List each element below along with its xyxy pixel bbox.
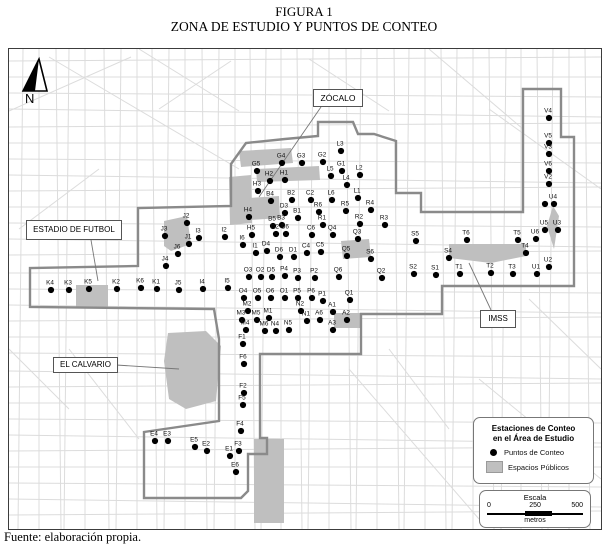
- point-label-L6: L6: [327, 190, 335, 197]
- point-L6: [329, 197, 335, 203]
- point-label-R6: R6: [314, 202, 323, 209]
- map-canvas: K4K3K5K2K6K1J2J3J1J6J4J5I2I3I6I1I4I5G5G4…: [8, 48, 602, 530]
- point-R2: [357, 221, 363, 227]
- point-label-I2: I2: [221, 227, 227, 234]
- point-I3: [196, 235, 202, 241]
- source-note: Fuente: elaboración propia.: [4, 530, 141, 545]
- legend-item-public-spaces: Espacios Públicos: [490, 461, 593, 473]
- legend-title-line1: Estaciones de Conteo: [474, 424, 593, 434]
- point-label-E3: E3: [163, 431, 171, 438]
- point-label-O2: O2: [256, 267, 265, 274]
- scale-title: Escala: [480, 493, 590, 502]
- point-M6: [262, 328, 268, 334]
- point-I1: [253, 250, 259, 256]
- point-J3: [162, 233, 168, 239]
- point-label-E2: E2: [202, 441, 210, 448]
- point-label-C2: C2: [306, 190, 315, 197]
- point-label-E4: E4: [150, 431, 158, 438]
- point-J2: [184, 220, 190, 226]
- point-label-T3: T3: [508, 264, 516, 271]
- point-A1: [330, 309, 336, 315]
- point-U6: [533, 236, 539, 242]
- point-L3: [338, 148, 344, 154]
- point-Q5: [344, 253, 350, 259]
- point-O6: [268, 295, 274, 301]
- point-label-F5: F5: [238, 395, 246, 402]
- point-label-D4: D4: [262, 241, 271, 248]
- point-E6: [233, 469, 239, 475]
- point-label-N5: N5: [284, 320, 293, 327]
- point-label-F3: F3: [234, 441, 242, 448]
- scale-bar: Escala 0 250 500 metros: [479, 490, 591, 528]
- point-label-G4: G4: [277, 153, 286, 160]
- legend-item-spaces-label: Espacios Públicos: [508, 463, 569, 472]
- point-label-R4: R4: [366, 200, 375, 207]
- point-label-F1: F1: [238, 334, 246, 341]
- point-L4: [344, 182, 350, 188]
- public-space-el-calvario: [164, 331, 221, 409]
- point-F1: [240, 341, 246, 347]
- point-label-E6: E6: [231, 462, 239, 469]
- zocalo-label: ZÓCALO: [313, 89, 363, 107]
- point-I6: [240, 242, 246, 248]
- point-A3: [330, 327, 336, 333]
- point-D1: [291, 254, 297, 260]
- point-label-E1: E1: [225, 446, 233, 453]
- point-G1: [339, 168, 345, 174]
- point-B1: [295, 215, 301, 221]
- point-O1: [282, 295, 288, 301]
- estadio-leader-line: [91, 240, 98, 281]
- point-label-A3: A3: [328, 320, 336, 327]
- point-E4: [152, 438, 158, 444]
- point-label-P3: P3: [293, 268, 301, 275]
- point-label-N4: N4: [271, 321, 280, 328]
- point-L1: [355, 195, 361, 201]
- point-label-N2: N2: [296, 301, 305, 308]
- point-B4: [268, 198, 274, 204]
- point-label-L5: L5: [326, 166, 334, 173]
- point-label-G3: G3: [297, 153, 306, 160]
- scale-ticks: 0 250 500: [487, 502, 583, 510]
- point-label-Q6: Q6: [334, 267, 343, 274]
- point-label-O3: O3: [244, 267, 253, 274]
- point-E1: [227, 453, 233, 459]
- point-S1: [433, 272, 439, 278]
- point-label-B4: B4: [266, 191, 274, 198]
- point-M4: [243, 327, 249, 333]
- point-label-H1: H1: [280, 170, 289, 177]
- point-label-K2: K2: [112, 279, 120, 286]
- point-label-D1: D1: [289, 247, 298, 254]
- point-label-I5: I5: [224, 278, 230, 285]
- point-label-R3: R3: [380, 215, 389, 222]
- point-label-T4: T4: [521, 243, 529, 250]
- point-S4: [446, 255, 452, 261]
- el-calvario-label: EL CALVARIO: [53, 357, 118, 373]
- point-label-Q3: Q3: [353, 229, 362, 236]
- point-R4: [368, 207, 374, 213]
- point-label-K6: K6: [136, 278, 144, 285]
- point-F4: [238, 428, 244, 434]
- point-label-V4: V4: [544, 108, 552, 115]
- point-label-A6: A6: [315, 310, 323, 317]
- point-K3: [66, 287, 72, 293]
- point-P3: [295, 275, 301, 281]
- point-label-M6: M6: [260, 321, 269, 328]
- point-T3: [510, 271, 516, 277]
- point-label-R2: R2: [355, 214, 364, 221]
- point-label-C6: C6: [307, 225, 316, 232]
- point-L5: [328, 173, 334, 179]
- point-Q3: [355, 236, 361, 242]
- public-space-icon: [486, 461, 503, 473]
- point-A2: [344, 317, 350, 323]
- point-N4: [273, 328, 279, 334]
- point-Q2: [379, 275, 385, 281]
- point-label-B5: B5: [268, 216, 276, 223]
- point-label-Q5: Q5: [342, 246, 351, 253]
- point-V2: [546, 181, 552, 187]
- point-label-K4: K4: [46, 280, 54, 287]
- north-label: N: [25, 91, 34, 106]
- point-label-J4: J4: [162, 256, 169, 263]
- point-label-K5: K5: [84, 279, 92, 286]
- point-M2: [245, 308, 251, 314]
- point-label-T6: T6: [462, 230, 470, 237]
- point-label-I3: I3: [195, 228, 201, 235]
- point-P1: [320, 298, 326, 304]
- point-G3: [299, 160, 305, 166]
- point-label-S2: S2: [409, 264, 417, 271]
- point-F5: [240, 402, 246, 408]
- point-label-C5: C5: [316, 242, 325, 249]
- point-G2: [320, 159, 326, 165]
- point-label-L4: L4: [342, 175, 350, 182]
- point-label-V5: V5: [544, 133, 552, 140]
- figure-title: FIGURA 1 ZONA DE ESTUDIO Y PUNTOS DE CON…: [0, 4, 608, 35]
- public-space-imss-block: [449, 244, 526, 263]
- point-T6: [464, 237, 470, 243]
- imss-label: IMSS: [480, 310, 516, 328]
- point-label-A1: A1: [328, 302, 336, 309]
- point-label-C4: C4: [302, 243, 311, 250]
- point-label-S5: S5: [411, 231, 419, 238]
- point-V3: [546, 151, 552, 157]
- point-E2: [204, 448, 210, 454]
- point-label-G2: G2: [318, 152, 327, 159]
- point-label-F6: F6: [239, 354, 247, 361]
- point-label-H5: H5: [247, 225, 256, 232]
- point-label-Q4: Q4: [328, 225, 337, 232]
- point-S5: [413, 238, 419, 244]
- legend-title-line2: en el Área de Estudio: [474, 434, 593, 444]
- point-label-K3: K3: [64, 280, 72, 287]
- point-Q4: [330, 232, 336, 238]
- point-label-P6: P6: [307, 288, 315, 295]
- point-label-M2: M2: [243, 301, 252, 308]
- point-J1: [186, 241, 192, 247]
- point-E3: [165, 438, 171, 444]
- point-K4: [48, 287, 54, 293]
- point-B2: [289, 197, 295, 203]
- point-label-K1: K1: [152, 279, 160, 286]
- scale-tick-250: 250: [529, 502, 541, 509]
- point-label-O6: O6: [266, 288, 275, 295]
- point-label-P4: P4: [280, 266, 288, 273]
- point-K6: [138, 285, 144, 291]
- point-R5: [343, 208, 349, 214]
- point-label-N1: N1: [302, 311, 311, 318]
- point-label-I4: I4: [199, 279, 205, 286]
- point-H5: [249, 232, 255, 238]
- point-label-M1: M1: [264, 308, 273, 315]
- point-label-P1: P1: [318, 291, 326, 298]
- point-label-L1: L1: [353, 188, 361, 195]
- point-C5: [318, 249, 324, 255]
- point-label-T5: T5: [513, 230, 521, 237]
- point-label-F2: F2: [239, 383, 247, 390]
- point-label-G1: G1: [337, 161, 346, 168]
- point-E5: [192, 444, 198, 450]
- point-H1: [282, 177, 288, 183]
- point-label-S4: S4: [444, 248, 452, 255]
- point-label-U6: U6: [531, 229, 540, 236]
- scale-tick-0: 0: [487, 502, 491, 509]
- point-U4: [551, 201, 557, 207]
- point-label-H3: H3: [253, 181, 262, 188]
- point-label-I1: I1: [252, 243, 258, 250]
- point-N1: [304, 318, 310, 324]
- point-label-D6: D6: [275, 247, 284, 254]
- legend-item-points-label: Puntos de Conteo: [504, 448, 564, 457]
- point-L2: [357, 172, 363, 178]
- point-D6: [277, 254, 283, 260]
- point-K5: [86, 286, 92, 292]
- figure-caption: ZONA DE ESTUDIO Y PUNTOS DE CONTEO: [0, 19, 608, 35]
- point-label-V2: V2: [544, 174, 552, 181]
- point-P2: [312, 275, 318, 281]
- point-D4: [264, 248, 270, 254]
- point-H3: [255, 188, 261, 194]
- point-label-R1: R1: [318, 215, 327, 222]
- point-D3: [282, 210, 288, 216]
- point-Q1: [347, 297, 353, 303]
- point-K2: [114, 286, 120, 292]
- figure-page: FIGURA 1 ZONA DE ESTUDIO Y PUNTOS DE CON…: [0, 0, 608, 550]
- scale-tick-500: 500: [571, 502, 583, 509]
- point-label-U3: U3: [553, 220, 562, 227]
- point-F3: [236, 448, 242, 454]
- point-label-Q1: Q1: [345, 290, 354, 297]
- point-label-L3: L3: [336, 141, 344, 148]
- point-K1: [154, 286, 160, 292]
- point-I2: [222, 234, 228, 240]
- point-P6: [309, 295, 315, 301]
- point-label-B1: B1: [293, 208, 301, 215]
- point-N5: [286, 327, 292, 333]
- point-label-L2: L2: [355, 165, 363, 172]
- point-label-I6: I6: [239, 235, 245, 242]
- point-C6: [309, 232, 315, 238]
- point-label-D3: D3: [280, 203, 289, 210]
- scale-unit: metros: [480, 517, 590, 525]
- point-J6: [175, 251, 181, 257]
- point-U2: [546, 264, 552, 270]
- scale-bar-graphic: [487, 510, 583, 516]
- point-G5: [254, 168, 260, 174]
- point-label-U5: U5: [540, 220, 549, 227]
- point-O5: [255, 295, 261, 301]
- north-arrow: [23, 59, 47, 91]
- point-label-T2: T2: [486, 263, 494, 270]
- point-T1: [457, 271, 463, 277]
- point-T2: [488, 270, 494, 276]
- point-P4: [282, 273, 288, 279]
- point-Q6: [336, 274, 342, 280]
- point-label-H2: H2: [265, 171, 274, 178]
- point-F6: [241, 361, 247, 367]
- point-unlabeled: [542, 201, 548, 207]
- point-A6: [317, 317, 323, 323]
- point-label-H4: H4: [244, 207, 253, 214]
- point-label-U4: U4: [549, 194, 558, 201]
- point-label-O5: O5: [253, 288, 262, 295]
- point-label-R5: R5: [341, 201, 350, 208]
- point-label-B2: B2: [287, 190, 295, 197]
- point-H4: [246, 214, 252, 220]
- legend: Estaciones de Conteo en el Área de Estud…: [473, 417, 594, 484]
- legend-item-points: Puntos de Conteo: [490, 448, 593, 457]
- point-J5: [176, 287, 182, 293]
- point-label-D5: D5: [267, 267, 276, 274]
- point-B6: [283, 231, 289, 237]
- point-H2: [267, 178, 273, 184]
- point-R3: [382, 222, 388, 228]
- point-label-J2: J2: [183, 213, 190, 220]
- point-D2: [273, 231, 279, 237]
- point-label-V3: V3: [544, 144, 552, 151]
- point-label-B6: B6: [281, 224, 289, 231]
- point-C4: [304, 250, 310, 256]
- point-I4: [200, 286, 206, 292]
- point-R1: [320, 222, 326, 228]
- point-label-A2: A2: [342, 310, 350, 317]
- point-label-M3: M3: [237, 310, 246, 317]
- point-label-F4: F4: [236, 421, 244, 428]
- point-J4: [163, 263, 169, 269]
- point-label-S6: S6: [366, 249, 374, 256]
- public-space-south-strip: [254, 439, 284, 523]
- point-G4: [279, 160, 285, 166]
- point-label-Q2: Q2: [377, 268, 386, 275]
- point-label-J5: J5: [175, 280, 182, 287]
- point-T4: [523, 250, 529, 256]
- point-label-E5: E5: [190, 437, 198, 444]
- point-label-P5: P5: [293, 288, 301, 295]
- estadio-de-futbol-label: ESTADIO DE FUTBOL: [26, 220, 122, 240]
- point-label-G5: G5: [252, 161, 261, 168]
- point-O2: [258, 274, 264, 280]
- point-label-T1: T1: [455, 264, 463, 271]
- point-label-U1: U1: [532, 264, 541, 271]
- point-T5: [515, 237, 521, 243]
- point-label-U2: U2: [544, 257, 553, 264]
- point-label-V6: V6: [544, 161, 552, 168]
- point-I5: [225, 285, 231, 291]
- point-label-J6: J6: [174, 244, 181, 251]
- point-label-D2: D2: [271, 224, 280, 231]
- point-S6: [368, 256, 374, 262]
- figure-number: FIGURA 1: [0, 4, 608, 19]
- point-U1: [534, 271, 540, 277]
- point-O3: [246, 274, 252, 280]
- point-label-O4: O4: [239, 288, 248, 295]
- count-point-icon: [490, 449, 497, 456]
- point-label-O1: O1: [280, 288, 289, 295]
- point-label-J3: J3: [161, 226, 168, 233]
- point-U5: [542, 227, 548, 233]
- point-S2: [411, 271, 417, 277]
- point-label-M4: M4: [241, 320, 250, 327]
- point-label-J1: J1: [185, 234, 192, 241]
- point-D5: [269, 274, 275, 280]
- point-label-M5: M5: [252, 310, 261, 317]
- point-U3: [555, 227, 561, 233]
- point-V4: [546, 115, 552, 121]
- point-label-S1: S1: [431, 265, 439, 272]
- point-label-P2: P2: [310, 268, 318, 275]
